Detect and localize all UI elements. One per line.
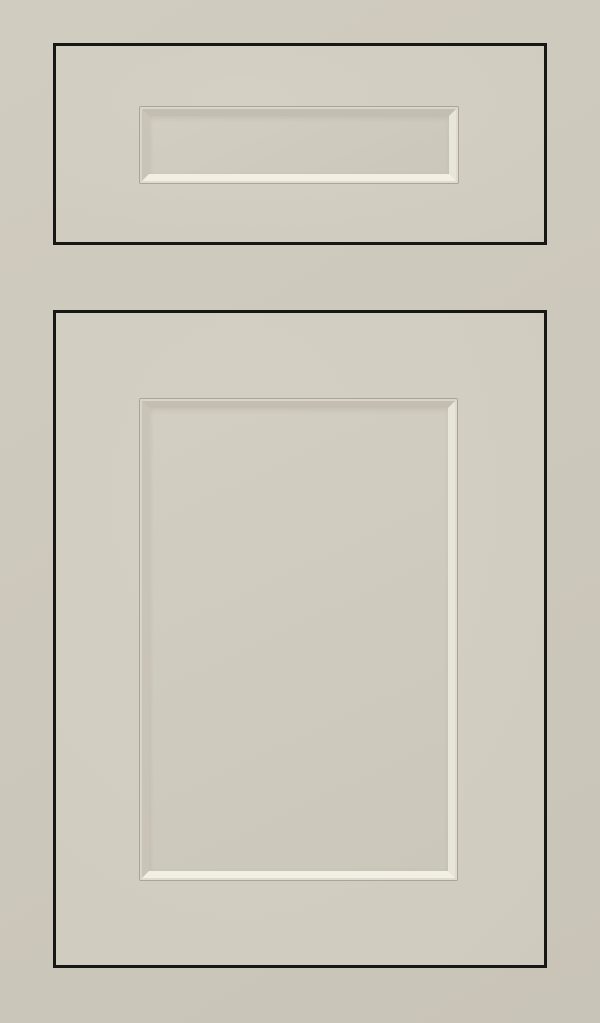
drawer-panel-bevel-slope — [142, 109, 456, 181]
door-front — [53, 310, 547, 968]
cabinet-door-sample-photo — [0, 0, 600, 1023]
drawer-panel-bevel-lip — [140, 107, 458, 183]
drawer-front — [53, 43, 547, 245]
drawer-panel-field — [149, 116, 449, 174]
door-panel-bevel-slope — [142, 401, 455, 878]
door-recessed-panel — [139, 398, 458, 881]
door-panel-bevel-lip — [140, 399, 457, 880]
drawer-recessed-panel — [139, 106, 459, 184]
door-panel-field — [149, 408, 448, 871]
